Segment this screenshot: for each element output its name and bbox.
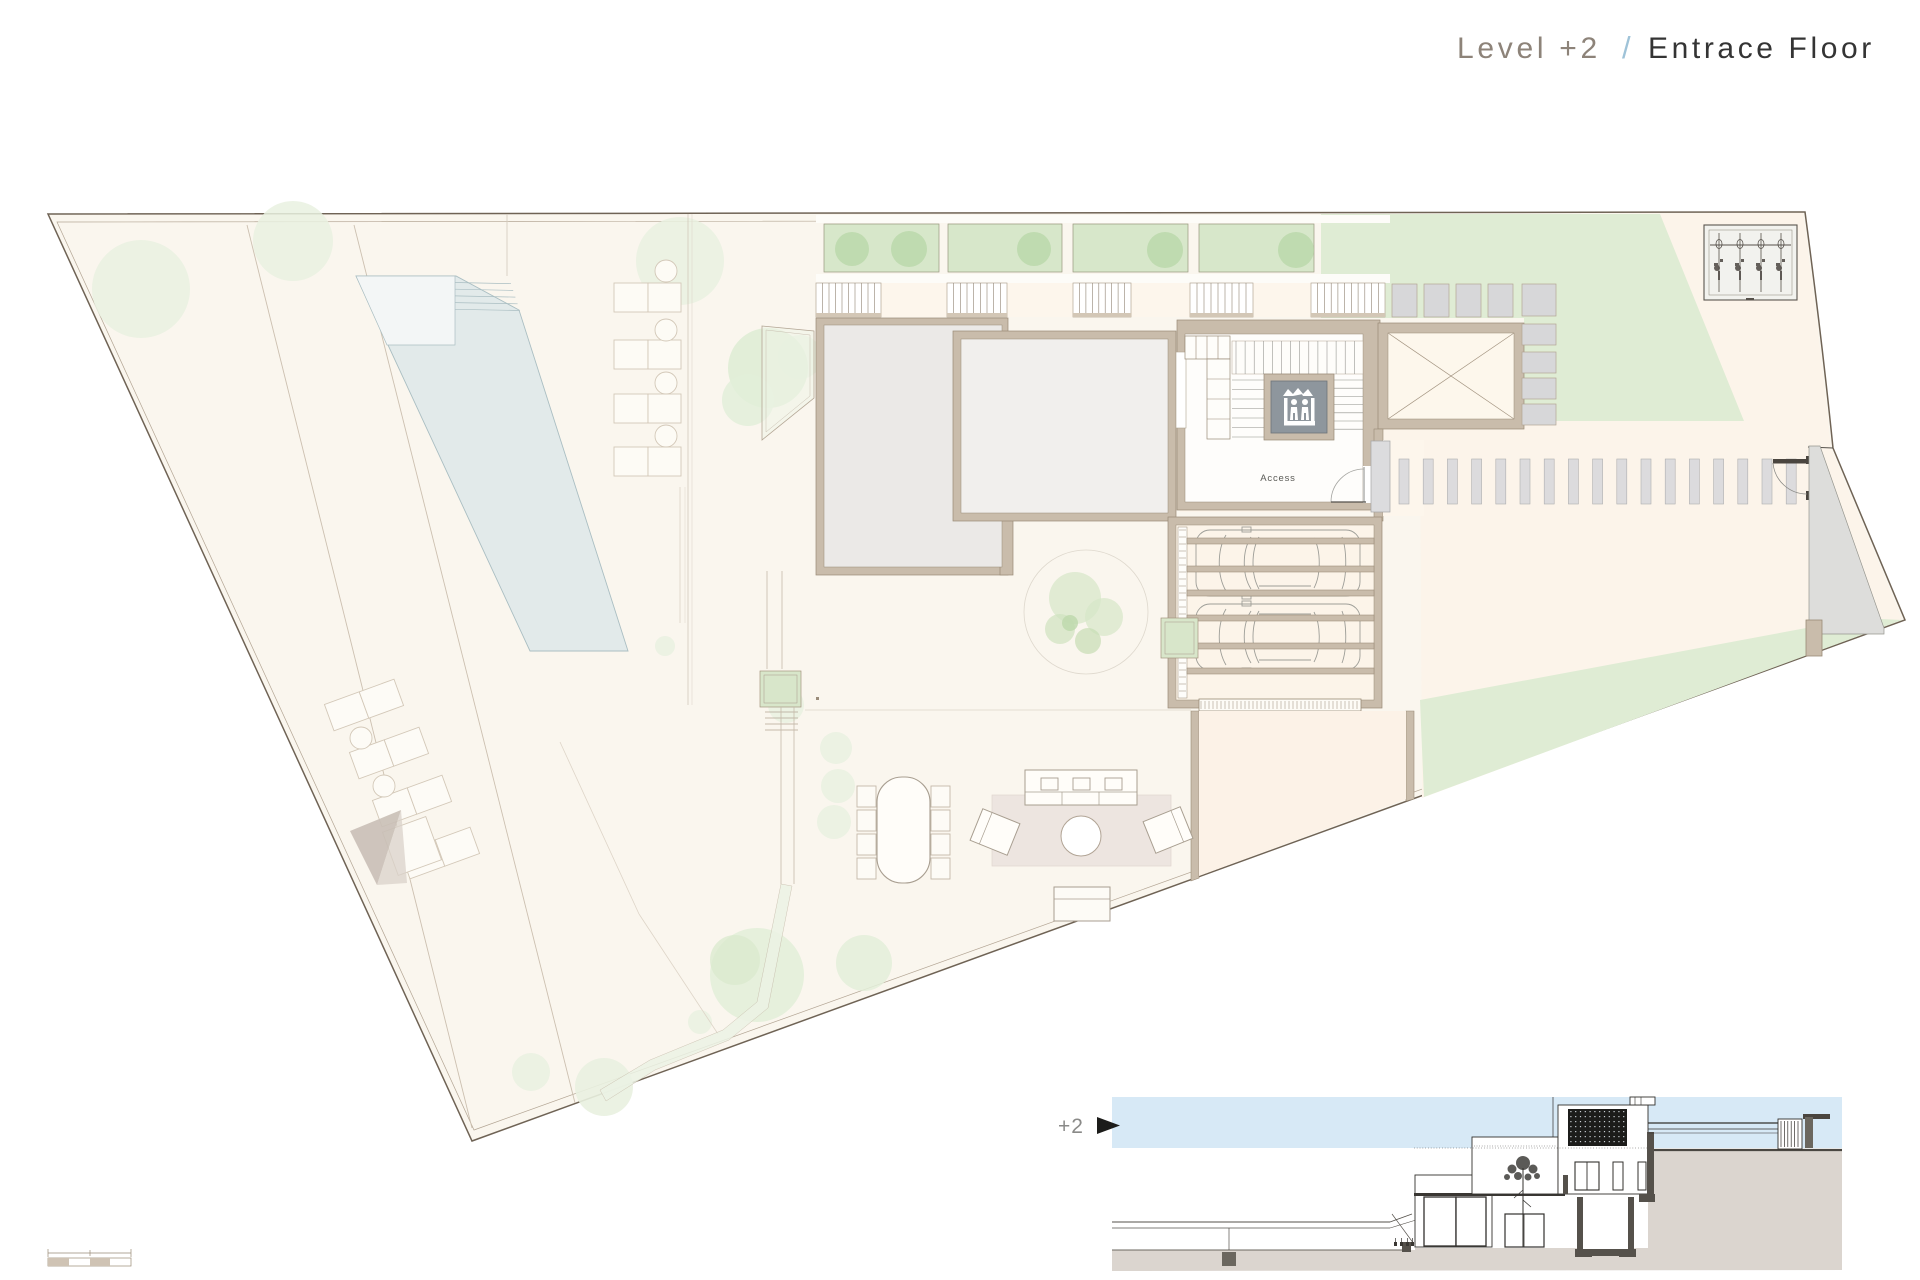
- svg-text:Entrace Floor: Entrace Floor: [1648, 32, 1875, 65]
- svg-text:Access: Access: [1260, 473, 1295, 484]
- svg-text:/: /: [1622, 30, 1631, 65]
- svg-text:+2: +2: [1058, 1115, 1084, 1138]
- svg-text:Level +2: Level +2: [1457, 32, 1601, 65]
